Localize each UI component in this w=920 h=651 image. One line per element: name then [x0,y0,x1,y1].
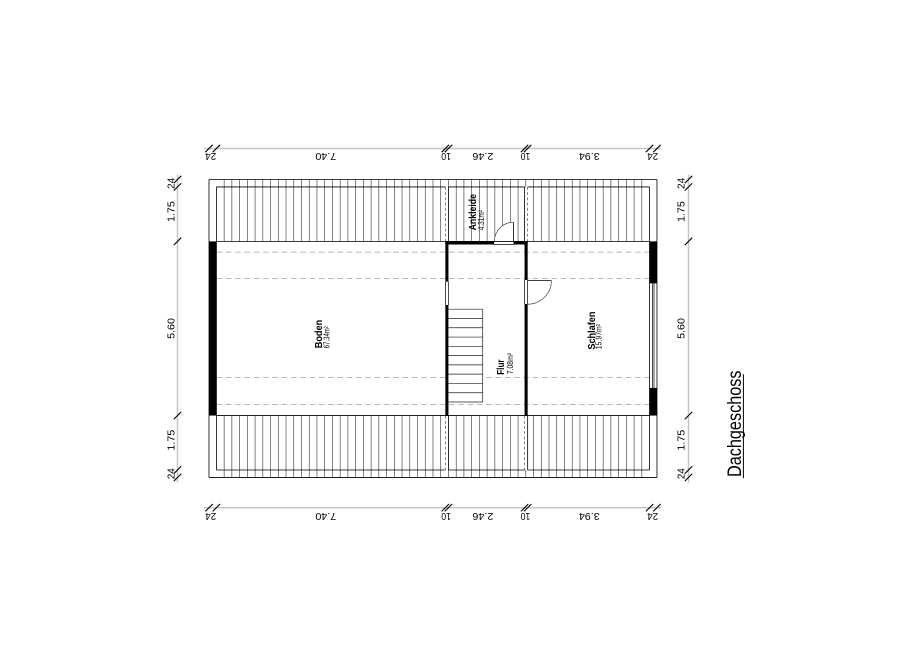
svg-text:24: 24 [205,150,217,161]
svg-text:3.94: 3.94 [578,510,599,521]
svg-text:7.40: 7.40 [315,150,336,161]
svg-text:24: 24 [676,468,687,480]
svg-text:24: 24 [205,510,217,521]
svg-text:10: 10 [441,510,451,521]
svg-text:1.75: 1.75 [676,201,687,222]
svg-text:5.60: 5.60 [166,318,177,339]
svg-text:10: 10 [520,510,530,521]
svg-text:1.75: 1.75 [166,429,177,450]
svg-text:24: 24 [166,177,177,189]
svg-text:15.97m²: 15.97m² [595,324,604,350]
svg-text:2.46: 2.46 [472,150,493,161]
svg-text:2.46: 2.46 [472,510,493,521]
svg-text:5.60: 5.60 [676,318,687,339]
svg-text:24: 24 [647,150,659,161]
svg-text:3.94: 3.94 [578,150,599,161]
svg-text:7.08m²: 7.08m² [506,353,515,375]
svg-text:4.31m²: 4.31m² [477,210,486,231]
svg-text:10: 10 [441,150,451,161]
svg-text:7.40: 7.40 [315,510,336,521]
svg-text:1.75: 1.75 [166,201,177,222]
svg-text:1.75: 1.75 [676,429,687,450]
svg-text:24: 24 [166,468,177,480]
svg-text:10: 10 [520,150,530,161]
svg-text:24: 24 [676,177,687,189]
svg-text:24: 24 [647,510,659,521]
svg-text:67.34m²: 67.34m² [322,326,331,348]
